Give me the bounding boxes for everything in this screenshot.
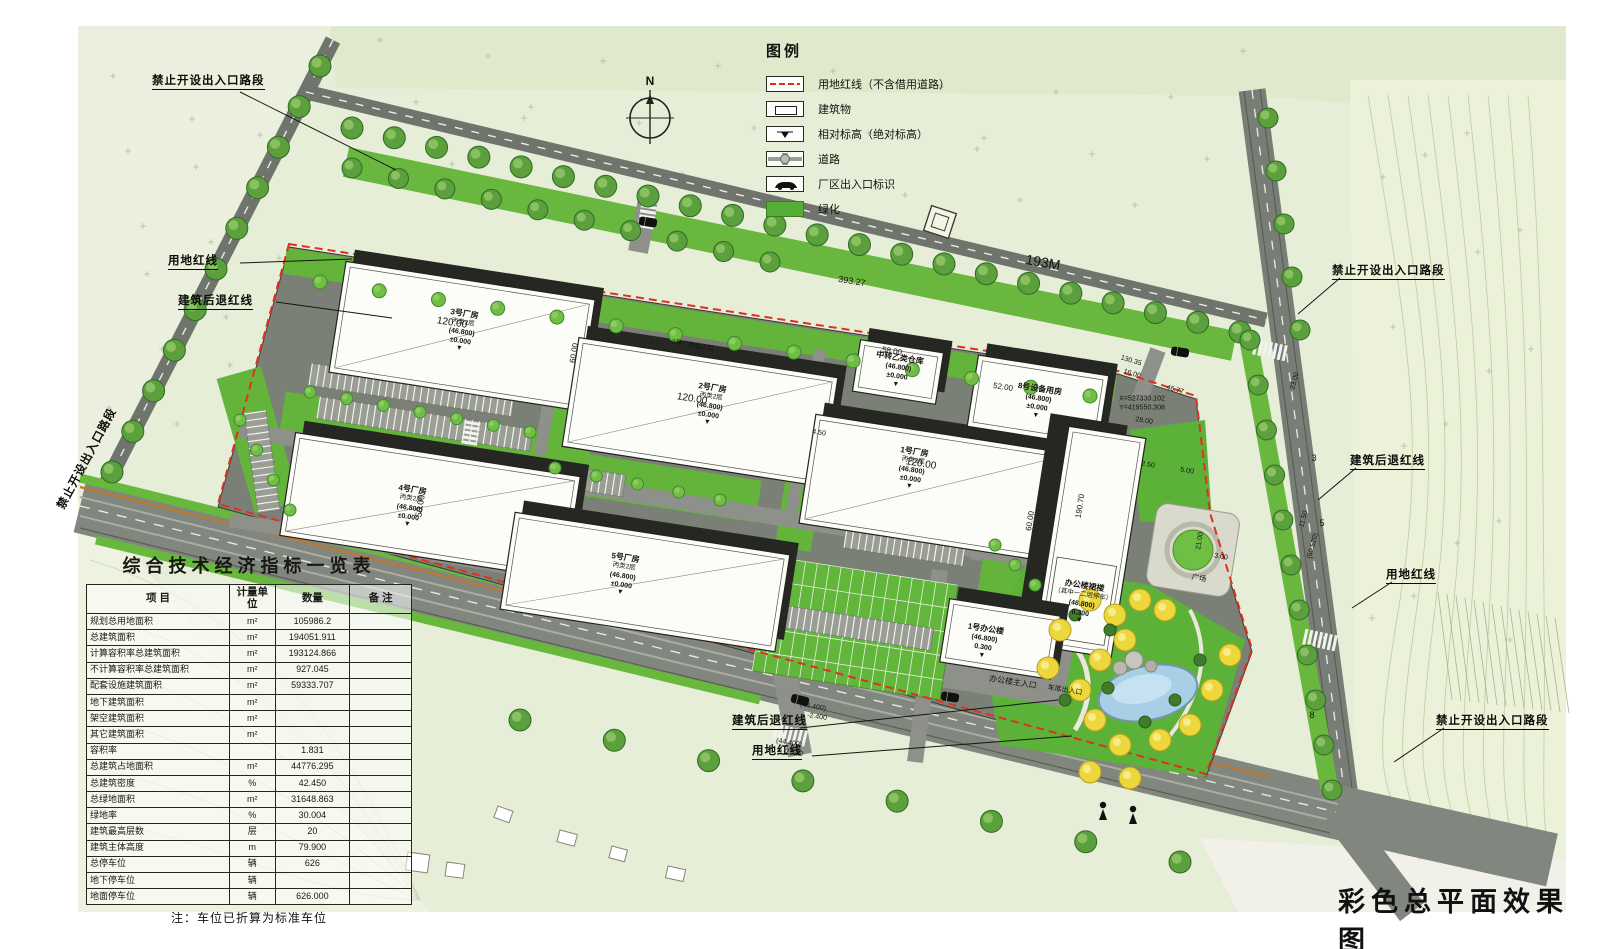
table-cell: 31648.863 xyxy=(275,792,350,808)
table-cell: 20 xyxy=(275,824,350,840)
table-cell: m² xyxy=(230,614,276,630)
table-row: 地面停车位辆626.000 xyxy=(87,889,412,905)
building-label: 8号设备用房(46.800)±0.000▼ xyxy=(1013,381,1062,421)
table-header-row: 项 目 计量单位 数量 备 注 xyxy=(87,585,412,614)
building-label: 中转乙类仓库(46.800)±0.000▼ xyxy=(872,350,925,391)
indicator-table-title: 综合技术经济指标一览表 xyxy=(86,552,412,578)
table-cell: 地下建筑面积 xyxy=(87,694,230,710)
table-cell: 层 xyxy=(230,824,276,840)
plan-annotation: 3 xyxy=(1311,453,1316,463)
callout-label: 禁止开设出入口路段 xyxy=(1436,712,1549,730)
table-row: 计算容积率总建筑面积m²193124.866 xyxy=(87,646,412,662)
table-cell xyxy=(350,662,412,678)
table-cell: m² xyxy=(230,727,276,743)
legend-item-entrance: 厂区出入口标识 xyxy=(766,171,1066,196)
table-cell xyxy=(350,727,412,743)
table-cell: 59333.707 xyxy=(275,678,350,694)
table-cell xyxy=(350,775,412,791)
table-cell xyxy=(350,711,412,727)
table-cell xyxy=(350,808,412,824)
legend-item-building: 建筑物 xyxy=(766,96,1066,121)
table-row: 规划总用地面积m²105986.2 xyxy=(87,614,412,630)
table-cell xyxy=(350,646,412,662)
table-cell xyxy=(275,727,350,743)
table-cell xyxy=(350,856,412,872)
table-cell: 其它建筑面积 xyxy=(87,727,230,743)
table-cell: 42.450 xyxy=(275,775,350,791)
building-label: 办公楼裙楼（其中一二层停车）(46.800)0.300▼ xyxy=(1050,577,1114,628)
table-row: 地下停车位辆 xyxy=(87,873,412,889)
table-cell: m² xyxy=(230,630,276,646)
table-row: 总建筑密度%42.450 xyxy=(87,775,412,791)
north-arrow-icon xyxy=(622,88,678,144)
plan-annotation: 8 xyxy=(1309,710,1314,720)
callout-label: 建筑后退红线 xyxy=(732,712,807,730)
table-cell: 计算容积率总建筑面积 xyxy=(87,646,230,662)
table-row: 不计算容积率总建筑面积m²927.045 xyxy=(87,662,412,678)
site-plan-canvas: N 图例 用地红线（不含借用道路） 建筑物 相对标高（绝对标高） xyxy=(0,0,1600,949)
col-unit: 计量单位 xyxy=(230,585,276,614)
table-cell: 辆 xyxy=(230,856,276,872)
table-cell: m² xyxy=(230,646,276,662)
table-row: 总停车位辆626 xyxy=(87,856,412,872)
entrance-car-symbol xyxy=(766,176,804,192)
table-cell: % xyxy=(230,808,276,824)
table-row: 建筑主体高度m79.900 xyxy=(87,840,412,856)
table-cell: 105986.2 xyxy=(275,614,350,630)
table-row: 总建筑占地面积m²44776.295 xyxy=(87,759,412,775)
table-cell: 建筑最高层数 xyxy=(87,824,230,840)
table-cell xyxy=(350,743,412,759)
table-cell: 194051.911 xyxy=(275,630,350,646)
table-cell: 不计算容积率总建筑面积 xyxy=(87,662,230,678)
table-cell xyxy=(230,743,276,759)
table-cell: 30.004 xyxy=(275,808,350,824)
road-symbol xyxy=(766,151,804,167)
table-cell: 626 xyxy=(275,856,350,872)
callout-label: 禁止开设出入口路段 xyxy=(152,72,265,90)
table-row: 总绿地面积m²31648.863 xyxy=(87,792,412,808)
table-cell: m² xyxy=(230,662,276,678)
legend-item-green: 绿化 xyxy=(766,196,1066,221)
table-cell: m² xyxy=(230,694,276,710)
indicator-table-grid: 项 目 计量单位 数量 备 注 规划总用地面积m²105986.2总建筑面积m²… xyxy=(86,584,412,905)
table-cell: m² xyxy=(230,711,276,727)
plan-annotation: Y=419550.308 xyxy=(1119,405,1165,412)
table-cell: 总建筑占地面积 xyxy=(87,759,230,775)
table-row: 配套设施建筑面积m²59333.707 xyxy=(87,678,412,694)
table-cell: 总绿地面积 xyxy=(87,792,230,808)
table-cell: m² xyxy=(230,792,276,808)
table-cell: 容积率 xyxy=(87,743,230,759)
plan-annotation: 5 xyxy=(1319,518,1324,528)
table-cell: 配套设施建筑面积 xyxy=(87,678,230,694)
table-row: 其它建筑面积m² xyxy=(87,727,412,743)
table-row: 架空建筑面积m² xyxy=(87,711,412,727)
legend-item-elevation: 相对标高（绝对标高） xyxy=(766,121,1066,146)
legend-item-redline: 用地红线（不含借用道路） xyxy=(766,71,1066,96)
table-row: 总建筑面积m²194051.911 xyxy=(87,630,412,646)
table-cell xyxy=(350,889,412,905)
table-row: 地下建筑面积m² xyxy=(87,694,412,710)
table-cell: 1.831 xyxy=(275,743,350,759)
north-arrow: N xyxy=(622,74,678,149)
elevation-marker-symbol xyxy=(766,126,804,142)
legend-item-road: 道路 xyxy=(766,146,1066,171)
legend: 图例 用地红线（不含借用道路） 建筑物 相对标高（绝对标高） 道路 xyxy=(766,40,1066,221)
callout-label: 建筑后退红线 xyxy=(178,292,253,310)
callout-label: 建筑后退红线 xyxy=(1350,452,1425,470)
table-cell: 架空建筑面积 xyxy=(87,711,230,727)
table-cell xyxy=(275,694,350,710)
col-note: 备 注 xyxy=(350,585,412,614)
table-cell xyxy=(350,614,412,630)
indicator-table: 综合技术经济指标一览表 项 目 计量单位 数量 备 注 规划总用地面积m²105… xyxy=(86,552,412,926)
table-row: 建筑最高层数层20 xyxy=(87,824,412,840)
table-cell: 总停车位 xyxy=(87,856,230,872)
table-cell xyxy=(350,694,412,710)
col-qty: 数量 xyxy=(275,585,350,614)
building-label: 1号办公楼(46.800)0.300▼ xyxy=(963,622,1004,661)
table-cell: m² xyxy=(230,678,276,694)
table-cell: m xyxy=(230,840,276,856)
table-cell: 79.900 xyxy=(275,840,350,856)
north-label: N xyxy=(622,74,678,88)
legend-title: 图例 xyxy=(766,40,1066,61)
table-cell: 927.045 xyxy=(275,662,350,678)
table-cell: 绿地率 xyxy=(87,808,230,824)
table-cell: 地下停车位 xyxy=(87,873,230,889)
table-cell xyxy=(350,630,412,646)
table-cell: 规划总用地面积 xyxy=(87,614,230,630)
callout-label: 用地红线 xyxy=(168,252,218,270)
green-area-symbol xyxy=(766,201,804,217)
table-cell xyxy=(350,840,412,856)
table-cell: 辆 xyxy=(230,889,276,905)
plan-annotation: X=527330.102 xyxy=(1119,396,1165,403)
table-row: 容积率1.831 xyxy=(87,743,412,759)
table-cell xyxy=(275,711,350,727)
table-cell: m² xyxy=(230,759,276,775)
table-cell: % xyxy=(230,775,276,791)
table-cell: 建筑主体高度 xyxy=(87,840,230,856)
table-cell: 总建筑密度 xyxy=(87,775,230,791)
table-cell: 44776.295 xyxy=(275,759,350,775)
table-cell: 地面停车位 xyxy=(87,889,230,905)
callout-label: 用地红线 xyxy=(1386,566,1436,584)
table-cell xyxy=(350,759,412,775)
table-cell xyxy=(350,873,412,889)
callout-label: 禁止开设出入口路段 xyxy=(1332,262,1445,280)
table-cell: 辆 xyxy=(230,873,276,889)
plan-annotation: 广场 xyxy=(1191,571,1208,584)
building-symbol xyxy=(766,101,804,117)
table-row: 绿地率%30.004 xyxy=(87,808,412,824)
drawing-title: 彩色总平面效果图 xyxy=(1338,880,1600,949)
table-cell: 193124.866 xyxy=(275,646,350,662)
table-cell xyxy=(350,824,412,840)
table-cell xyxy=(350,678,412,694)
indicator-table-note: 注：车位已折算为标准车位 xyxy=(86,909,412,926)
table-cell xyxy=(275,873,350,889)
table-cell: 总建筑面积 xyxy=(87,630,230,646)
red-line-symbol xyxy=(766,76,804,92)
col-item: 项 目 xyxy=(87,585,230,614)
table-cell: 626.000 xyxy=(275,889,350,905)
table-cell xyxy=(350,792,412,808)
